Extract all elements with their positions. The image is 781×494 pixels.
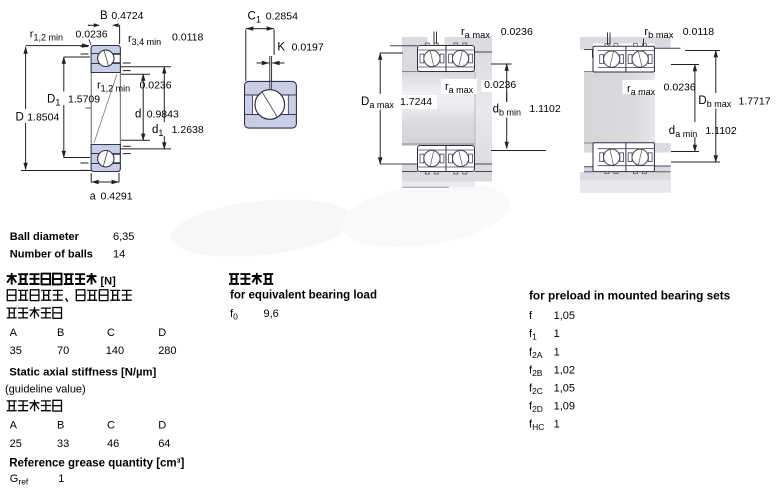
svg-text:1.1102: 1.1102 bbox=[705, 125, 736, 137]
svg-text:A: A bbox=[10, 420, 18, 432]
svg-text:1: 1 bbox=[554, 347, 560, 359]
svg-text:14: 14 bbox=[113, 249, 125, 261]
svg-text:0.0118: 0.0118 bbox=[683, 26, 714, 38]
svg-text:1.2638: 1.2638 bbox=[172, 124, 204, 136]
svg-text:64: 64 bbox=[158, 438, 170, 450]
svg-text:46: 46 bbox=[107, 438, 119, 450]
svg-text:1,05: 1,05 bbox=[554, 310, 575, 322]
svg-text:A: A bbox=[10, 327, 18, 339]
svg-text:B: B bbox=[57, 420, 64, 432]
svg-text:Number of balls: Number of balls bbox=[10, 249, 93, 261]
svg-text:B: B bbox=[57, 327, 64, 339]
svg-text:0.0118: 0.0118 bbox=[172, 32, 203, 44]
svg-text:140: 140 bbox=[106, 345, 124, 357]
svg-text:1: 1 bbox=[58, 473, 64, 485]
svg-text:280: 280 bbox=[158, 345, 176, 357]
svg-text:6,35: 6,35 bbox=[113, 231, 134, 243]
svg-text:1,09: 1,09 bbox=[554, 401, 575, 413]
svg-text:1.7717: 1.7717 bbox=[739, 95, 771, 107]
svg-text:d: d bbox=[135, 109, 141, 121]
svg-text:D: D bbox=[16, 112, 24, 124]
svg-text:for equivalent bearing load: for equivalent bearing load bbox=[230, 290, 377, 302]
svg-text:D: D bbox=[158, 327, 166, 339]
svg-text:K: K bbox=[277, 41, 285, 53]
svg-text:Reference grease quantity [cm³: Reference grease quantity [cm³] bbox=[9, 457, 184, 469]
svg-text:35: 35 bbox=[10, 345, 22, 357]
svg-text:a: a bbox=[90, 191, 97, 203]
svg-text:25: 25 bbox=[10, 438, 22, 450]
svg-text:(guideline value): (guideline value) bbox=[5, 384, 86, 396]
svg-text:0.2854: 0.2854 bbox=[266, 11, 298, 23]
svg-text:0.0236: 0.0236 bbox=[76, 29, 108, 41]
svg-text:0.4291: 0.4291 bbox=[101, 191, 133, 203]
svg-text:0.0236: 0.0236 bbox=[664, 82, 696, 94]
svg-text:0.0236: 0.0236 bbox=[484, 79, 516, 91]
svg-text:Ball diameter: Ball diameter bbox=[10, 231, 80, 243]
svg-text:1.1102: 1.1102 bbox=[529, 103, 560, 115]
svg-text:[N]: [N] bbox=[101, 276, 117, 288]
svg-text:1: 1 bbox=[554, 328, 560, 340]
svg-text:1.5709: 1.5709 bbox=[68, 94, 100, 106]
svg-text:0.0236: 0.0236 bbox=[501, 26, 533, 38]
svg-text:1.7244: 1.7244 bbox=[400, 96, 432, 108]
svg-text:9,6: 9,6 bbox=[264, 308, 279, 320]
svg-text:D: D bbox=[158, 420, 166, 432]
svg-text:0.4724: 0.4724 bbox=[111, 10, 143, 22]
svg-text:B: B bbox=[100, 10, 108, 22]
svg-text:C: C bbox=[107, 420, 115, 432]
svg-text:Static axial stiffness [N/µm]: Static axial stiffness [N/µm] bbox=[9, 366, 156, 378]
svg-text:0.0197: 0.0197 bbox=[292, 41, 324, 53]
svg-text:1,05: 1,05 bbox=[554, 383, 575, 395]
svg-text:0.0236: 0.0236 bbox=[140, 80, 172, 92]
svg-text:70: 70 bbox=[57, 345, 69, 357]
svg-text:for preload in mounted bearing: for preload in mounted bearing sets bbox=[529, 289, 731, 303]
svg-text:1.8504: 1.8504 bbox=[27, 112, 59, 124]
svg-text:1,02: 1,02 bbox=[554, 365, 575, 377]
svg-text:33: 33 bbox=[57, 438, 69, 450]
svg-text:0.9843: 0.9843 bbox=[147, 109, 179, 121]
svg-text:1: 1 bbox=[554, 419, 560, 431]
svg-text:C: C bbox=[107, 327, 115, 339]
